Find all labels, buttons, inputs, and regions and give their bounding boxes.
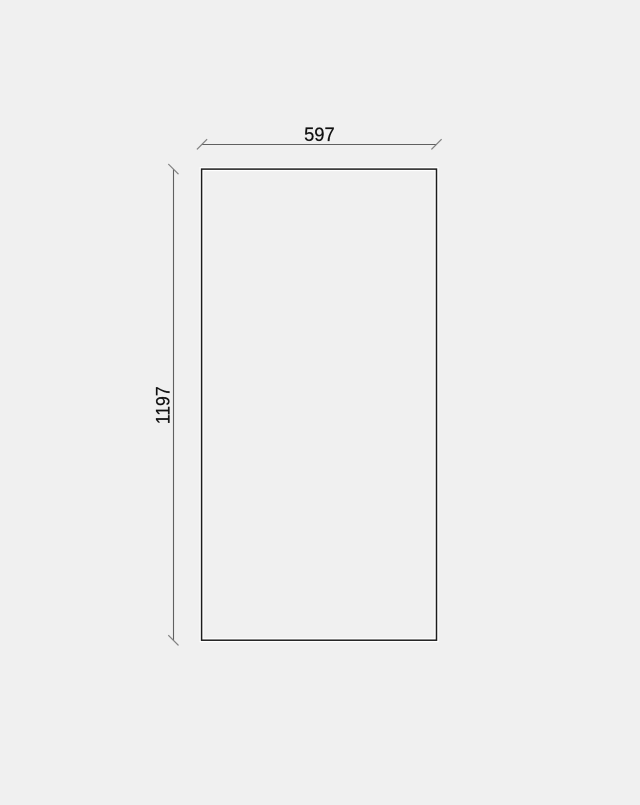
- svg-text:1197: 1197: [154, 386, 175, 424]
- svg-text:597: 597: [304, 125, 335, 146]
